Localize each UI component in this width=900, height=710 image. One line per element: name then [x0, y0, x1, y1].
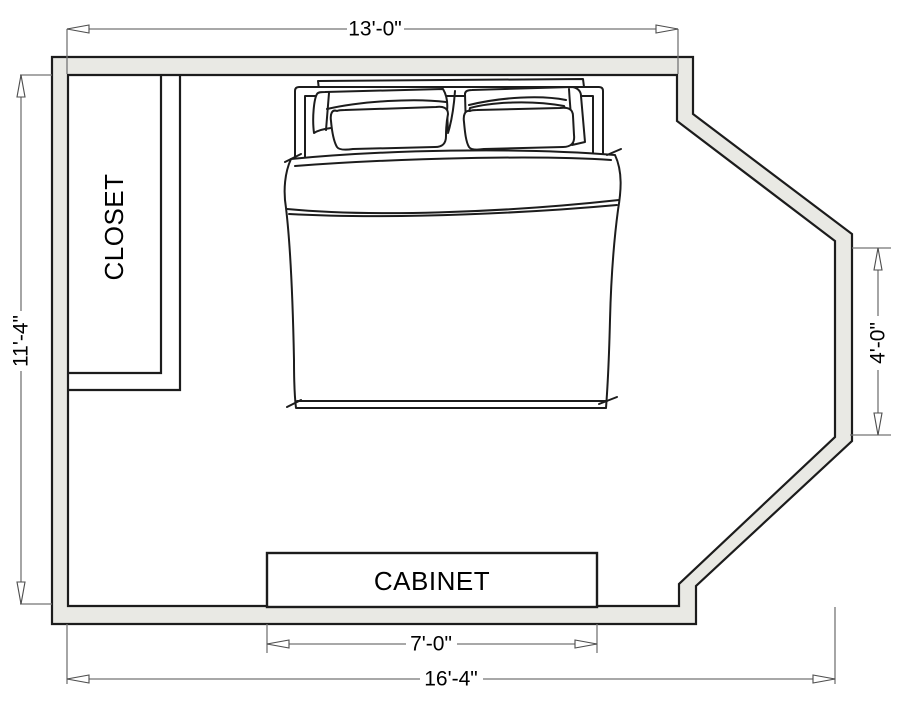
dimension-bottom-arrow-right: [813, 675, 835, 683]
dimension-cabinet: 7'-0": [267, 624, 597, 656]
floor-plan-page: CLOSET: [0, 0, 900, 710]
dimension-right: 4'-0": [850, 248, 891, 435]
dimension-bottom-arrow-left: [67, 675, 89, 683]
cabinet: CABINET: [267, 553, 597, 607]
closet: CLOSET: [67, 75, 180, 390]
pillow-front-right: [464, 108, 574, 150]
dimension-right-arrow-bottom: [874, 413, 882, 435]
dimension-right-arrow-top: [874, 248, 882, 270]
dimension-top-arrow-right: [656, 25, 678, 33]
dimension-left-arrow-top: [17, 75, 25, 97]
dimension-cabinet-arrow-left: [267, 640, 289, 648]
bed: [285, 79, 621, 408]
dimension-left: 11'-4": [10, 75, 53, 604]
dimension-left-arrow-bottom: [17, 582, 25, 604]
dimension-left-label: 11'-4": [10, 315, 33, 367]
pillow-front-left: [331, 107, 448, 150]
dimension-top-arrow-left: [67, 25, 89, 33]
dimension-cabinet-arrow-right: [575, 640, 597, 648]
blanket: [285, 150, 621, 408]
dimension-bottom-label: 16'-4": [424, 668, 478, 691]
cabinet-label: CABINET: [374, 566, 490, 596]
dimension-top-label: 13'-0": [348, 18, 402, 41]
closet-label: CLOSET: [99, 173, 129, 280]
dimension-right-label: 4'-0": [867, 322, 890, 364]
floor-plan: CLOSET: [0, 0, 900, 710]
dimension-cabinet-label: 7'-0": [410, 633, 452, 656]
